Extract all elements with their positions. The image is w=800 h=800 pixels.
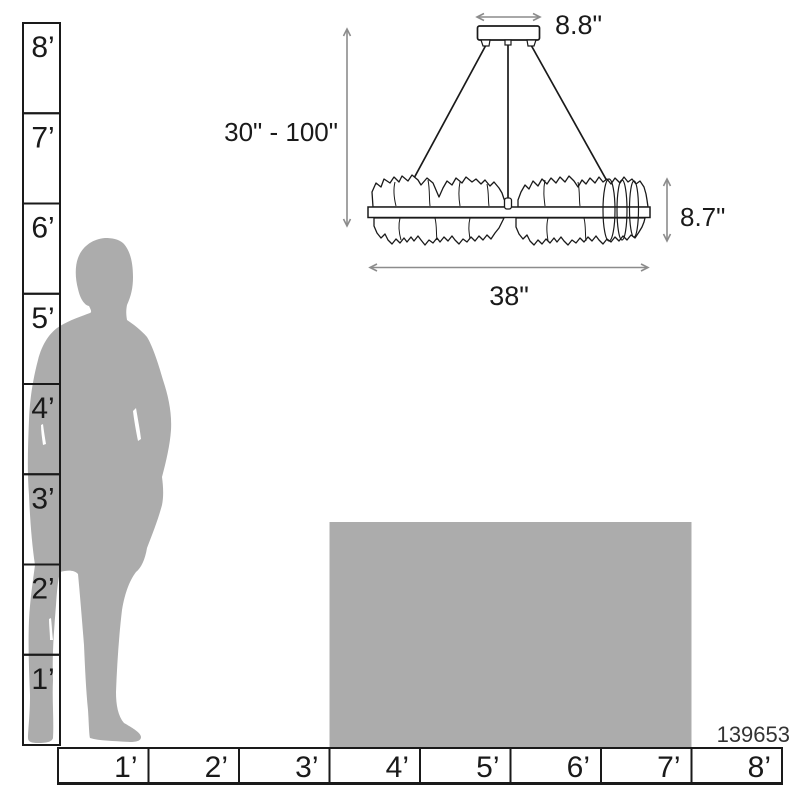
horizontal-ruler-label: 2’ bbox=[205, 751, 228, 784]
scale-diagram: 8’ 7’ 6’ 5’ 4’ 3’ 2’ 1’ 1’ 2’ 3’ 4’ 5’ 6… bbox=[0, 0, 800, 800]
vertical-ruler-label: 8’ bbox=[31, 31, 54, 64]
body-height-arrow bbox=[664, 179, 671, 241]
suspension-range-label: 30" - 100" bbox=[224, 117, 338, 147]
glass-band-lower-left bbox=[374, 218, 504, 245]
horizontal-ruler-label: 3’ bbox=[295, 751, 318, 784]
vertical-ruler-label: 7’ bbox=[31, 121, 54, 154]
horizontal-ruler-labels: 1’ 2’ 3’ 4’ 5’ 6’ 7’ 8’ bbox=[114, 751, 771, 784]
stem-end-cap bbox=[505, 198, 512, 209]
vertical-ruler-label: 4’ bbox=[31, 392, 54, 425]
canopy-connector-right bbox=[527, 40, 536, 46]
diagram-svg: 8’ 7’ 6’ 5’ 4’ 3’ 2’ 1’ 1’ 2’ 3’ 4’ 5’ 6… bbox=[0, 0, 800, 800]
horizontal-ruler-label: 7’ bbox=[657, 751, 680, 784]
vertical-ruler-label: 2’ bbox=[31, 573, 54, 606]
body-width-arrow bbox=[370, 264, 648, 271]
canopy-connector-center bbox=[505, 40, 511, 45]
table-block bbox=[330, 522, 692, 748]
horizontal-ruler-label: 5’ bbox=[476, 751, 499, 784]
vertical-ruler-label: 5’ bbox=[31, 302, 54, 335]
glass-band-upper-right bbox=[518, 176, 648, 207]
canopy-width-arrow bbox=[477, 14, 540, 21]
horizontal-ruler-label: 1’ bbox=[114, 751, 137, 784]
dimension-annotations: 8.8" 30" - 100" 8.7" 38" bbox=[224, 10, 725, 311]
canopy-connector-left bbox=[481, 40, 490, 46]
ceiling-canopy bbox=[478, 26, 540, 40]
chandelier-drawing bbox=[368, 26, 650, 245]
vertical-ruler-label: 3’ bbox=[31, 482, 54, 515]
vertical-ruler-label: 1’ bbox=[31, 663, 54, 696]
suspension-cable-left bbox=[413, 45, 486, 180]
horizontal-ruler-label: 6’ bbox=[567, 751, 590, 784]
horizontal-ruler-label: 4’ bbox=[386, 751, 409, 784]
body-height-label: 8.7" bbox=[680, 202, 725, 232]
product-code: 139653 bbox=[717, 722, 790, 747]
suspension-range-arrow bbox=[344, 29, 351, 226]
body-width-label: 38" bbox=[489, 281, 529, 311]
canopy-width-label: 8.8" bbox=[555, 10, 602, 40]
glass-band-upper-left bbox=[372, 175, 506, 207]
vertical-ruler-label: 6’ bbox=[31, 212, 54, 245]
suspension-cable-right bbox=[531, 45, 607, 181]
horizontal-ruler-label: 8’ bbox=[748, 751, 771, 784]
